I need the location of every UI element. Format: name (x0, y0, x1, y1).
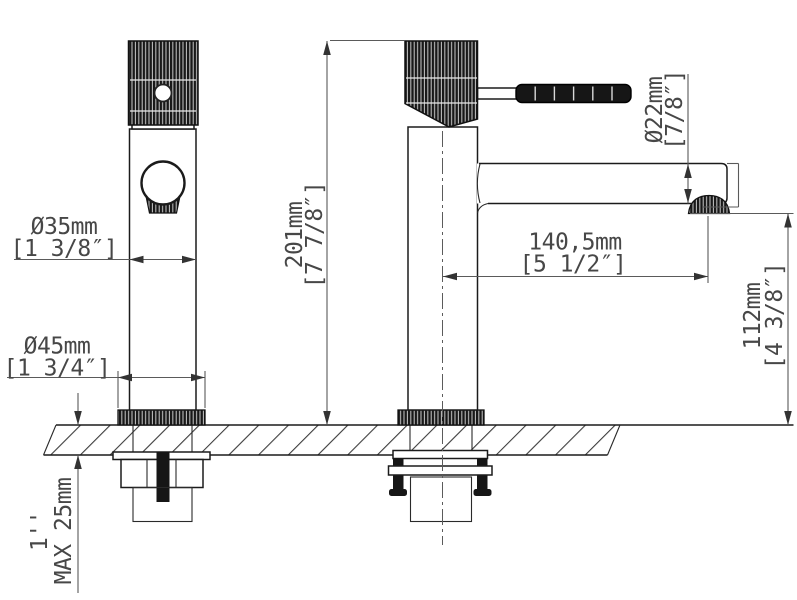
dim-total-height: 201mm [7 7/8″] (282, 41, 405, 426)
side-handle-knob (405, 41, 478, 127)
side-supply-pipe (411, 477, 472, 522)
side-base-ring (398, 410, 484, 425)
side-bracket-plate (389, 466, 493, 475)
dim-spout-height: 112mm [4 3/8″] (690, 214, 794, 426)
front-spout-circle (142, 162, 185, 205)
countertop-hatch (44, 425, 621, 455)
dim-spout-height-imperial: [4 3/8″] (762, 263, 788, 370)
front-knob-hole (155, 85, 172, 102)
front-handle-knob (129, 41, 199, 125)
side-spout-fill (477, 164, 727, 204)
dim-deck-thickness: 1'' MAX 25mm (27, 393, 82, 593)
faucet-dimension-drawing: Ø35mm [1 3/8″] Ø45mm [1 3/4″] 201mm [7 7… (0, 0, 797, 600)
side-flange-plate (393, 451, 488, 459)
dim-deck-thickness-imperial: 1'' (27, 511, 53, 551)
dim-spout-reach-imperial: [5 1/2″] (520, 252, 627, 278)
dim-body-diameter-imperial: [1 3/8″] (11, 236, 118, 262)
dim-deck-thickness-metric: MAX 25mm (51, 478, 77, 585)
front-base-ring (118, 410, 205, 425)
dim-base-diameter-imperial: [1 3/4″] (4, 356, 111, 382)
dim-spout-diameter-imperial: [7/8″] (662, 70, 688, 150)
dim-total-height-imperial: [7 7/8″] (302, 182, 328, 289)
side-lever-rod (478, 88, 518, 99)
technical-drawing-canvas: Ø35mm [1 3/8″] Ø45mm [1 3/4″] 201mm [7 7… (0, 0, 797, 600)
dim-spout-reach: 140,5mm [5 1/2″] (443, 216, 708, 283)
front-center-stud (157, 452, 170, 502)
